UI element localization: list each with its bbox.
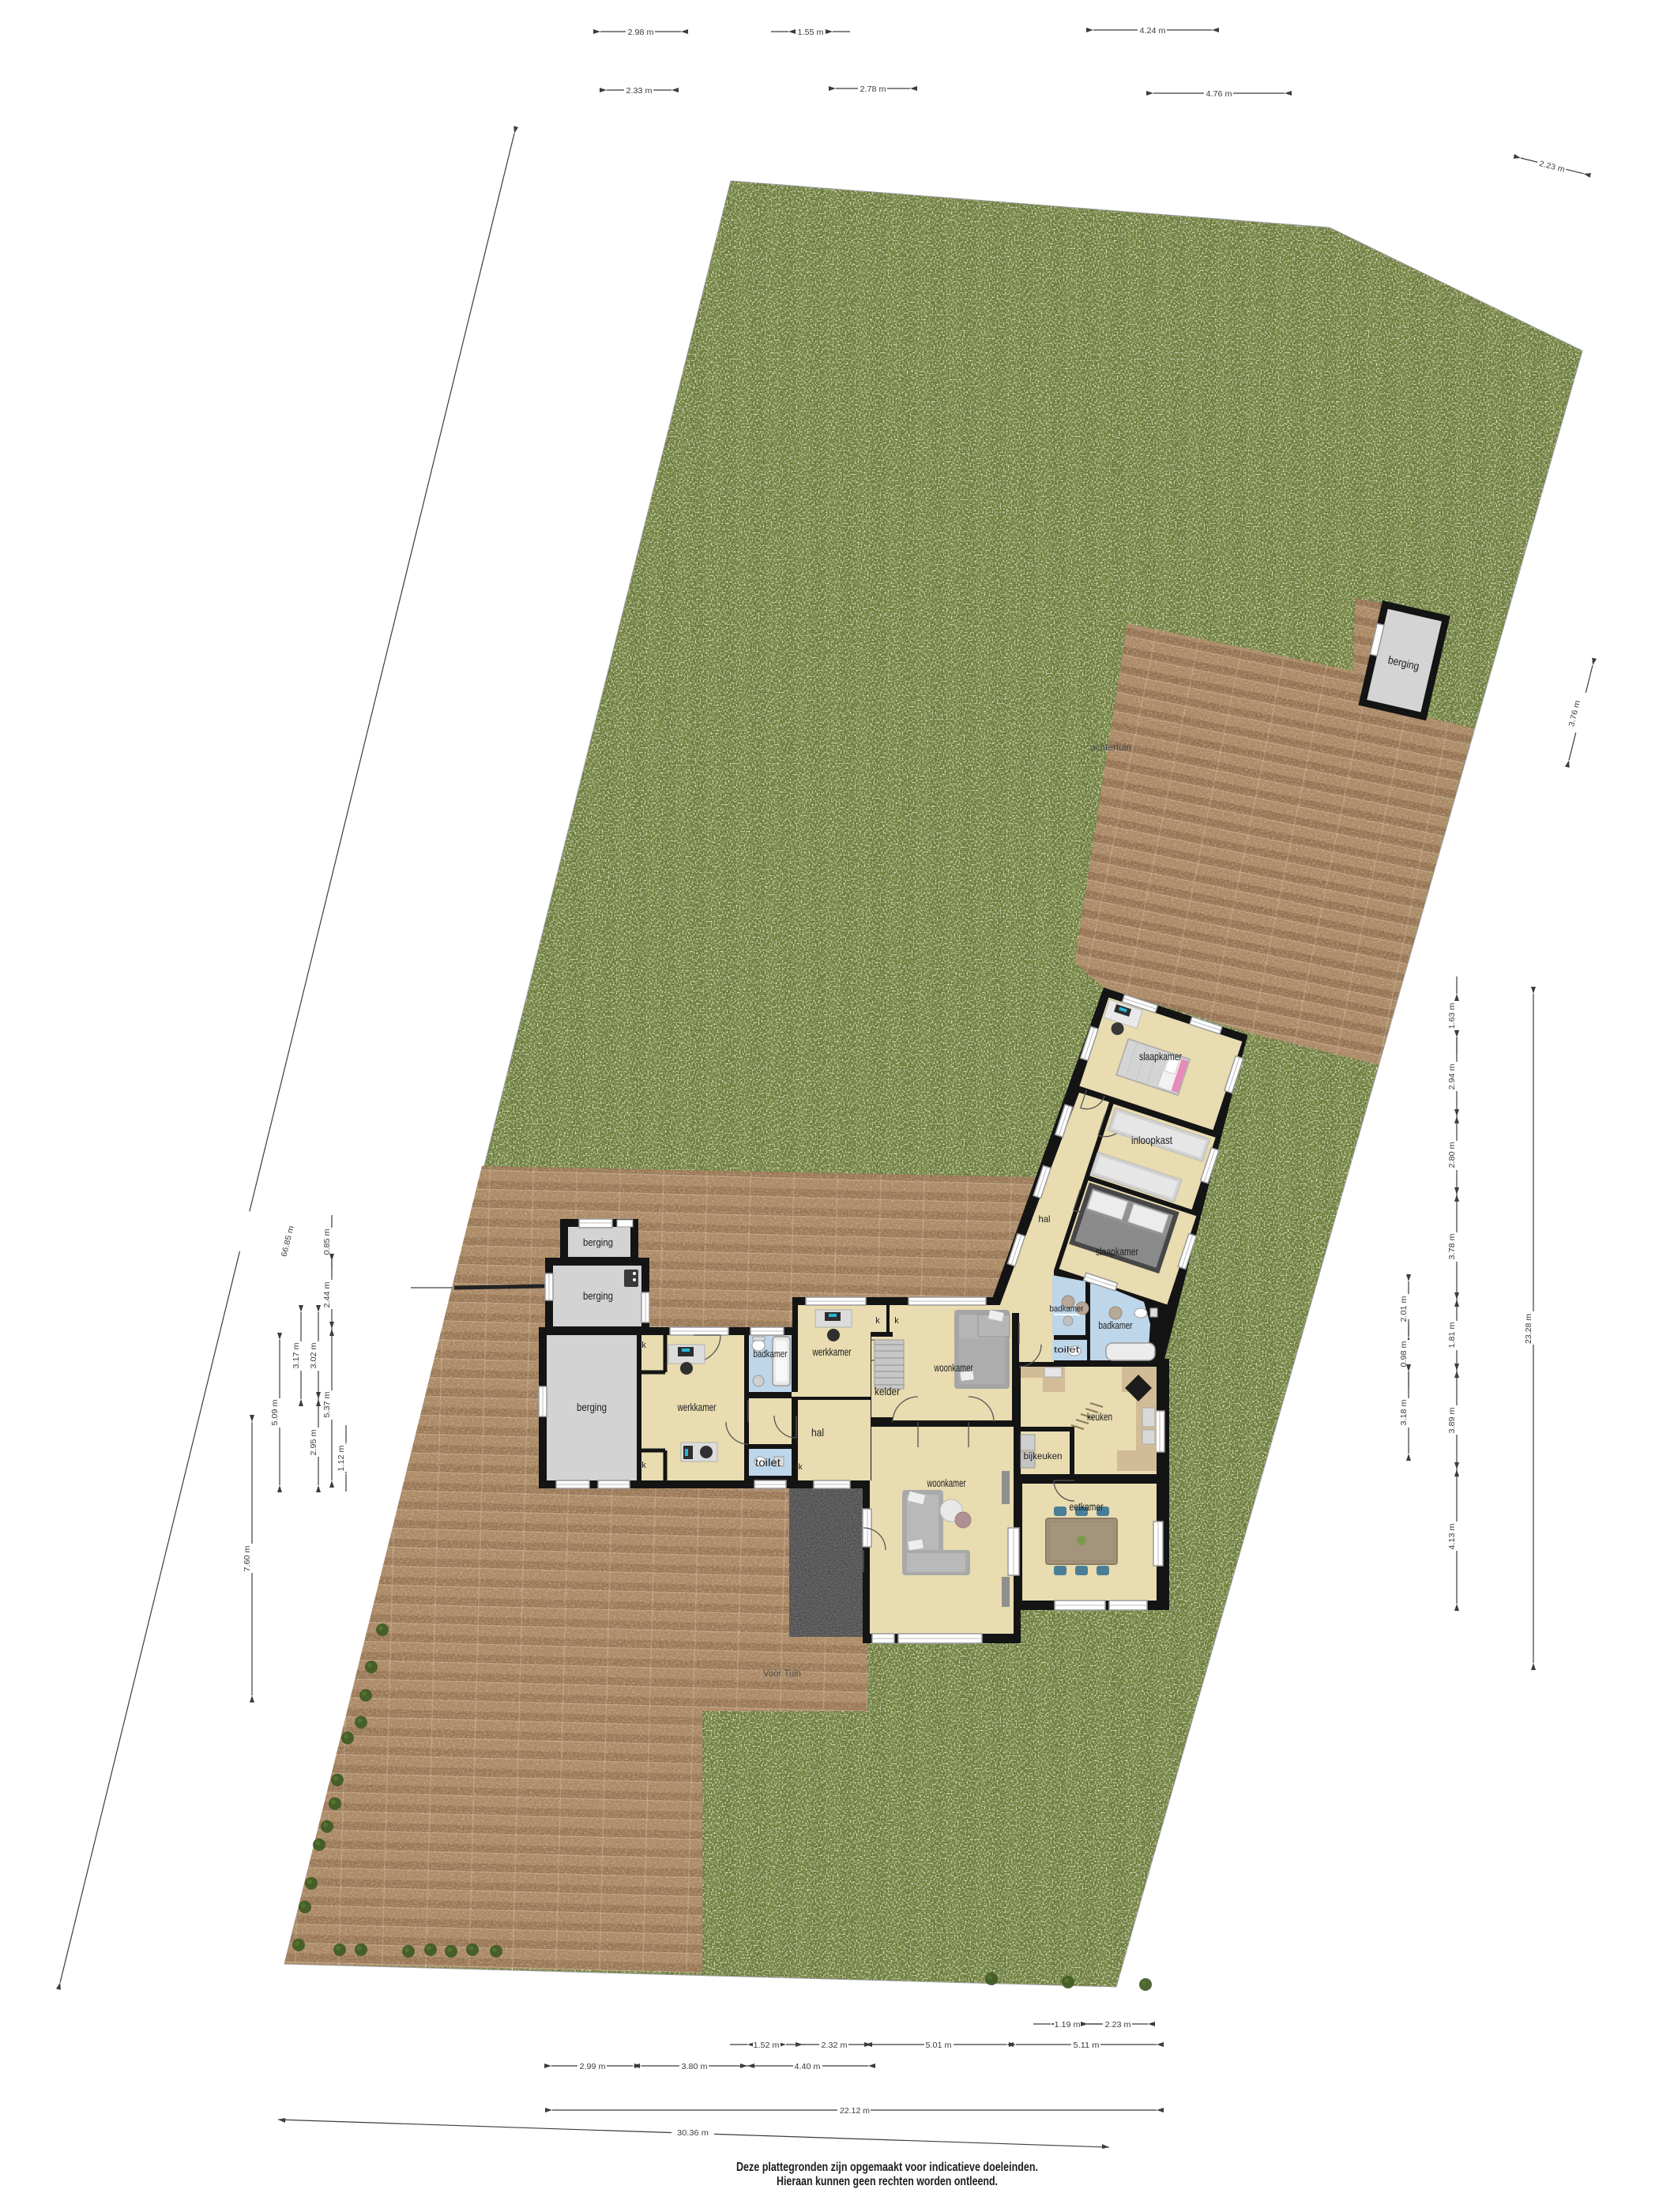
svg-text:toilet: toilet xyxy=(755,1456,781,1469)
svg-text:2.94 m: 2.94 m xyxy=(1448,1064,1457,1090)
svg-text:badkamer: badkamer xyxy=(1050,1304,1084,1314)
svg-text:werkkamer: werkkamer xyxy=(812,1345,852,1358)
svg-text:woonkamer: woonkamer xyxy=(934,1361,973,1374)
svg-text:Deze plattegronden zijn opgema: Deze plattegronden zijn opgemaakt voor i… xyxy=(736,2161,1038,2174)
svg-text:23.28 m: 23.28 m xyxy=(1525,1314,1533,1344)
svg-text:toilet: toilet xyxy=(1054,1345,1079,1355)
svg-text:k: k xyxy=(641,1341,646,1350)
svg-text:1.55 m: 1.55 m xyxy=(798,28,824,37)
svg-text:3.78 m: 3.78 m xyxy=(1448,1234,1457,1260)
svg-text:2.99 m: 2.99 m xyxy=(580,2063,606,2071)
svg-text:woonkamer: woonkamer xyxy=(927,1477,966,1489)
svg-text:berging: berging xyxy=(583,1236,613,1248)
svg-text:2.80 m: 2.80 m xyxy=(1448,1142,1457,1168)
svg-text:5.37 m: 5.37 m xyxy=(323,1392,332,1418)
svg-text:1.52 m: 1.52 m xyxy=(754,2041,780,2050)
svg-text:k: k xyxy=(894,1316,899,1326)
svg-text:2.23 m: 2.23 m xyxy=(1105,2021,1131,2030)
svg-text:inloopkast: inloopkast xyxy=(1131,1134,1172,1146)
svg-text:3.89 m: 3.89 m xyxy=(1448,1408,1457,1434)
svg-text:2.32 m: 2.32 m xyxy=(822,2041,848,2050)
svg-text:4.40 m: 4.40 m xyxy=(795,2063,821,2071)
svg-text:bijkeuken: bijkeuken xyxy=(1024,1450,1063,1461)
svg-text:badkamer: badkamer xyxy=(1099,1319,1133,1331)
svg-text:hal: hal xyxy=(1039,1213,1051,1224)
svg-text:3.80 m: 3.80 m xyxy=(682,2063,708,2071)
svg-text:22.12 m: 22.12 m xyxy=(840,2107,870,2116)
svg-text:4.13 m: 4.13 m xyxy=(1448,1524,1457,1550)
svg-text:2.44 m: 2.44 m xyxy=(323,1282,332,1308)
svg-text:berging: berging xyxy=(577,1401,607,1413)
svg-text:keuken: keuken xyxy=(1087,1410,1112,1423)
svg-text:3.18 m: 3.18 m xyxy=(1400,1400,1409,1426)
svg-text:4.76 m: 4.76 m xyxy=(1206,90,1232,99)
svg-text:30.36 m: 30.36 m xyxy=(677,2129,709,2138)
svg-text:7.60 m: 7.60 m xyxy=(243,1546,252,1572)
svg-text:0.98 m: 0.98 m xyxy=(1400,1341,1409,1367)
svg-text:2.33 m: 2.33 m xyxy=(626,87,653,96)
svg-text:werkkamer: werkkamer xyxy=(677,1401,717,1413)
svg-text:hal: hal xyxy=(811,1426,824,1439)
svg-text:k: k xyxy=(641,1461,646,1470)
svg-text:slaapkamer: slaapkamer xyxy=(1096,1245,1138,1258)
svg-text:2.98 m: 2.98 m xyxy=(628,28,654,37)
svg-text:eetkamer: eetkamer xyxy=(1070,1500,1104,1513)
svg-text:0.85 m: 0.85 m xyxy=(323,1229,332,1255)
svg-text:5.09 m: 5.09 m xyxy=(271,1400,280,1426)
svg-text:kelder: kelder xyxy=(875,1385,900,1398)
svg-text:berging: berging xyxy=(583,1289,613,1302)
svg-text:slaapkamer: slaapkamer xyxy=(1139,1050,1182,1063)
svg-text:Voor Tuin: Voor Tuin xyxy=(763,1668,801,1679)
svg-text:Hieraan kunnen geen rechten wo: Hieraan kunnen geen rechten worden ontle… xyxy=(777,2175,998,2188)
svg-text:4.24 m: 4.24 m xyxy=(1140,27,1166,36)
svg-text:k: k xyxy=(875,1316,880,1326)
svg-text:5.11 m: 5.11 m xyxy=(1074,2041,1100,2050)
svg-text:3.17 m: 3.17 m xyxy=(292,1343,301,1369)
svg-text:1.19 m: 1.19 m xyxy=(1055,2021,1081,2030)
svg-text:mk: mk xyxy=(792,1463,803,1472)
svg-text:achtertuin: achtertuin xyxy=(1090,742,1131,753)
svg-text:2.95 m: 2.95 m xyxy=(310,1430,318,1456)
svg-text:1.63 m: 1.63 m xyxy=(1448,1003,1457,1029)
svg-text:2.78 m: 2.78 m xyxy=(860,85,886,94)
svg-text:2.01 m: 2.01 m xyxy=(1400,1296,1409,1322)
svg-text:3.02 m: 3.02 m xyxy=(310,1343,318,1369)
svg-text:1.81 m: 1.81 m xyxy=(1448,1322,1457,1349)
svg-text:1.12 m: 1.12 m xyxy=(337,1446,346,1472)
svg-text:badkamer: badkamer xyxy=(754,1348,788,1360)
svg-text:5.01 m: 5.01 m xyxy=(926,2041,952,2050)
